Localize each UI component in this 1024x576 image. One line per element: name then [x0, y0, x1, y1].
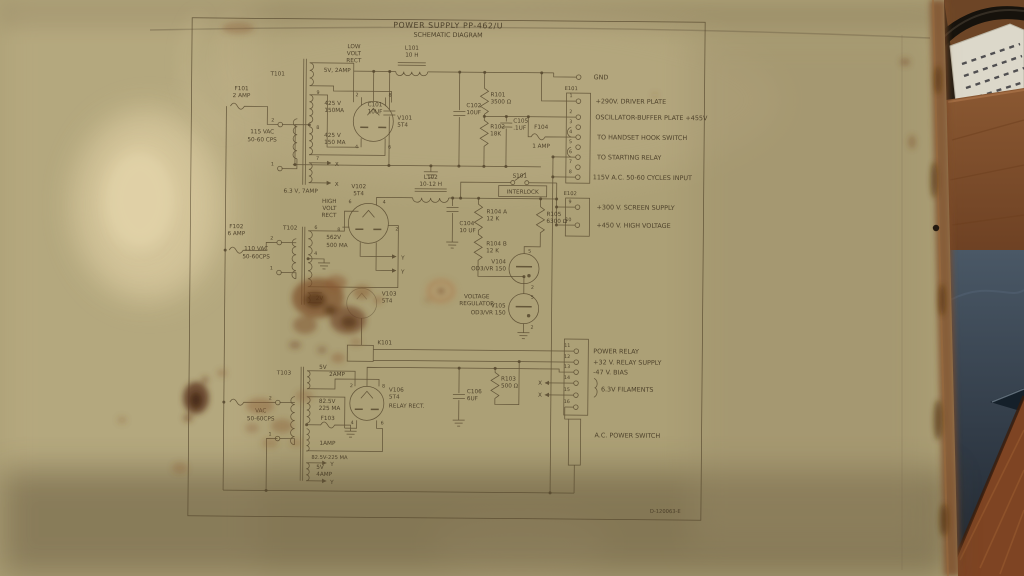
terminal-label-1: +290V. DRIVER PLATE: [595, 97, 666, 106]
label-v102-d: V102: [351, 184, 366, 190]
label-voltage-regulator-2: REGULATOR: [459, 301, 494, 307]
label-c101-d: C101: [368, 102, 383, 108]
table-wood-edge: [946, 88, 1024, 268]
label-c104-d: C104: [459, 221, 474, 227]
pin-number: 7: [569, 159, 572, 165]
pin-digit: 8: [316, 125, 319, 131]
pin-number: 1: [569, 93, 572, 99]
pin-digit: 6: [348, 199, 351, 205]
label-v101-v: 5T4: [397, 123, 408, 129]
label-f101-v: 2 AMP: [233, 93, 251, 99]
label-l102-d: L102: [424, 175, 438, 181]
label-v101-cap2: VOLT: [347, 51, 362, 57]
label-t103: T103: [276, 371, 292, 377]
label-f104-d: F104: [534, 125, 549, 131]
label-r103-d: R103: [501, 376, 516, 382]
label-r104a-v: 12 K: [486, 216, 499, 222]
label-voltage-regulator-1: VOLTAGE: [464, 294, 490, 300]
terminal-label-9: +300 V. SCREEN SUPPLY: [597, 203, 675, 212]
pin-number: 15: [564, 387, 570, 393]
terminal-label-filaments: 6.3V FILAMENTS: [601, 385, 654, 393]
marker-x: X: [538, 381, 542, 387]
pin-digit: 2: [355, 92, 358, 98]
label-r104a-d: R104 A: [486, 209, 507, 215]
label-c106-v: 6UF: [467, 396, 478, 402]
pin-digit: 2: [395, 227, 398, 233]
label-v102-v: 5T4: [353, 191, 364, 197]
terminal-label-ac-switch: A.C. POWER SWITCH: [595, 431, 661, 440]
pin-digit: 1: [270, 265, 273, 271]
pin-digit: 1: [271, 161, 274, 167]
pin-digit: 8: [337, 227, 340, 233]
label-r101-v: 3500 Ω: [490, 99, 511, 105]
pin-digit: 1: [268, 431, 271, 437]
pin-number: 6: [569, 149, 572, 155]
label-t101-w2a2: 150MA: [324, 108, 344, 114]
label-l101-v: 10 H: [405, 53, 418, 59]
pin-digit: 2: [530, 325, 533, 331]
pin-number: 14: [564, 375, 570, 381]
pin-digit: 6: [314, 225, 317, 231]
marker-y: Y: [400, 256, 405, 262]
pin-number: 8: [569, 169, 572, 175]
label-t103-w3b: 4AMP: [316, 472, 332, 478]
terminal-label-13: -47 V. BIAS: [593, 368, 628, 376]
pin-digit: 4: [351, 420, 354, 426]
pin-digit: 4: [355, 144, 358, 150]
pin-digit: 8: [388, 92, 391, 98]
label-r103-v: 500 Ω: [501, 383, 519, 389]
label-t101-w2b2: 150 MA: [324, 140, 346, 146]
terminal-label-10: +450 V. HIGH VOLTAGE: [596, 221, 670, 230]
label-t103-w1a: 5V: [319, 365, 327, 371]
label-c102-v: 10UF: [466, 110, 481, 116]
marker-x: X: [538, 393, 542, 399]
label-t103-primary2: 50-60CPS: [247, 416, 275, 422]
label-v106-caption: RELAY RECT.: [389, 404, 425, 410]
label-r104b-d: R104 B: [486, 241, 507, 247]
pin-digit: 6: [388, 144, 391, 150]
label-t103-w1b: 2AMP: [329, 372, 345, 378]
pin-digit: 2: [531, 285, 534, 291]
label-t102-primary1: 110 VAC: [244, 246, 268, 252]
pin-number: 12: [564, 354, 570, 360]
terminal-label-6: TO STARTING RELAY: [596, 153, 661, 162]
label-v101-cap3: RECT: [346, 58, 362, 64]
label-l101-d: L101: [405, 46, 419, 52]
glare-highlight: [70, 115, 210, 295]
label-v103-v: 5T4: [382, 298, 393, 304]
terminal-label-4: TO HANDSET HOOK SWITCH: [596, 133, 687, 142]
label-v103-d: V103: [382, 291, 397, 297]
label-t103-w2line: 82.5V-225 MA: [311, 455, 348, 461]
pin-digit: 2: [271, 117, 274, 123]
pin-number: 2: [569, 109, 572, 115]
label-c102-d: C102: [466, 103, 481, 109]
label-t103-w3a: 5V: [316, 465, 324, 471]
pin-digit: 4: [314, 251, 317, 257]
pin-number: 4: [569, 129, 572, 135]
label-v101-cap1: LOW: [347, 44, 360, 50]
label-v106-v: 5T4: [389, 395, 400, 401]
label-v105-v: OD3/VR 150: [471, 310, 506, 316]
label-c106-d: C106: [467, 389, 482, 395]
terminal-label-11: POWER RELAY: [593, 347, 639, 355]
label-t102-w12: 500 MA: [326, 243, 348, 249]
pin-digit: 9: [317, 90, 320, 96]
drawing-number: D-120063-E: [650, 509, 681, 515]
label-f103-v: 1AMP: [320, 441, 336, 447]
label-k101: K101: [377, 340, 392, 346]
marker-y: Y: [329, 462, 334, 468]
label-c104-v: 10 UF: [459, 228, 476, 234]
label-v104-v: OD3/VR 150: [471, 266, 506, 272]
pin-digit: 5: [528, 249, 531, 255]
label-r101-d: R101: [490, 92, 505, 98]
label-t101-w2b1: 425 V: [324, 133, 341, 139]
terminal-label-2: OSCILLATOR-BUFFER PLATE +455V: [595, 113, 708, 122]
label-t102-w11: 562V: [326, 235, 341, 241]
label-t101-primary1: 115 VAC: [250, 129, 274, 135]
label-c105-d: C105: [513, 119, 528, 125]
schematic-title-line1: POWER SUPPLY PP-462/U: [393, 21, 503, 31]
label-t101: T101: [270, 71, 286, 77]
label-s101-d: S101: [513, 174, 528, 180]
label-r104b-v: 12 K: [486, 248, 499, 254]
label-c101-v: 10UF: [368, 109, 383, 115]
label-f103-d: F103: [321, 416, 336, 422]
pin-number: 9: [569, 199, 572, 205]
label-t102: T102: [282, 226, 298, 232]
label-e102: E102: [564, 191, 577, 197]
marker-x: X: [335, 182, 339, 188]
pin-number: 3: [569, 119, 572, 125]
mounting-hole: [933, 225, 939, 231]
label-v106-d: V106: [389, 388, 404, 394]
label-t101-w3: 6.3 V, 7AMP: [284, 189, 319, 195]
label-v105-d: V105: [491, 303, 506, 309]
marker-y: Y: [400, 270, 405, 276]
label-v101-d: V101: [397, 116, 412, 122]
pin-number: 16: [564, 399, 570, 405]
label-e101: E101: [565, 86, 578, 92]
pin-digit: 2: [350, 383, 353, 389]
schematic-title-line2: SCHEMATIC DIAGRAM: [413, 31, 482, 40]
pin-digit: 2: [270, 235, 273, 241]
label-r102-d: R102: [490, 124, 505, 130]
label-gnd: GND: [594, 73, 609, 81]
terminal-label-8: 115V A.C. 50-60 CYCLES INPUT: [593, 173, 692, 182]
label-t102-primary2: 50-60CPS: [242, 254, 270, 260]
pin-digit: 7: [316, 156, 319, 162]
label-t101-w2a1: 425 V: [324, 101, 341, 107]
pin-number: 5: [569, 139, 572, 145]
marker-x: X: [335, 162, 339, 168]
pin-digit: 8: [382, 383, 385, 389]
label-c105-v: .1UF: [513, 126, 526, 132]
label-f102-d: F102: [229, 224, 244, 230]
pin-digit: 4: [383, 199, 386, 205]
label-r105-v: 6300 Ω: [546, 219, 567, 225]
label-f102-v: 6 AMP: [227, 231, 245, 237]
label-t101-w1: 5V, 2AMP: [324, 68, 352, 74]
label-f101-d: F101: [234, 86, 249, 92]
pin-number: 11: [564, 343, 570, 349]
label-s101-v: INTERLOCK: [507, 190, 539, 196]
marker-y: Y: [329, 480, 334, 486]
label-v102-cap3: RECT: [321, 213, 337, 219]
photo-of-schematic-plate: POWER SUPPLY PP-462/U SCHEMATIC DIAGRAM …: [0, 0, 1024, 576]
label-t103-w2b: 225 MA: [319, 406, 341, 412]
label-v104-d: V104: [491, 259, 506, 265]
label-r105-d: R105: [546, 212, 561, 218]
label-t103-w2a: 82.5V: [319, 399, 336, 405]
label-t101-primary2: 50-60 CPS: [247, 137, 277, 143]
pin-digit: 6: [381, 420, 384, 426]
label-l102-v: 10-12 H: [419, 182, 442, 188]
label-v102-cap1: HIGH: [322, 199, 337, 205]
label-r102-v: 18K: [490, 131, 501, 137]
pin-digit: 5: [531, 295, 534, 301]
label-v102-cap2: VOLT: [322, 206, 337, 212]
terminal-label-12: +32 V. RELAY SUPPLY: [593, 358, 661, 367]
pin-number: 13: [564, 364, 570, 370]
label-f104-v: 1 AMP: [532, 144, 550, 150]
